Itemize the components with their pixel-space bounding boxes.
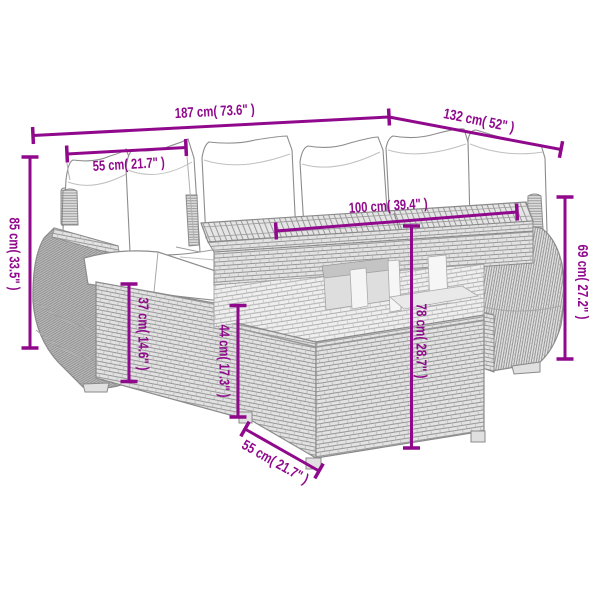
svg-text:37 cm( 14.6" ): 37 cm( 14.6" ) (135, 298, 151, 371)
svg-text:85 cm( 33.5" ): 85 cm( 33.5" ) (6, 218, 22, 291)
svg-text:44 cm( 17.3" ): 44 cm( 17.3" ) (216, 325, 232, 398)
svg-text:69 cm( 27.2" ): 69 cm( 27.2" ) (574, 245, 590, 320)
svg-text:78 cm( 28.7" ): 78 cm( 28.7" ) (413, 304, 429, 379)
